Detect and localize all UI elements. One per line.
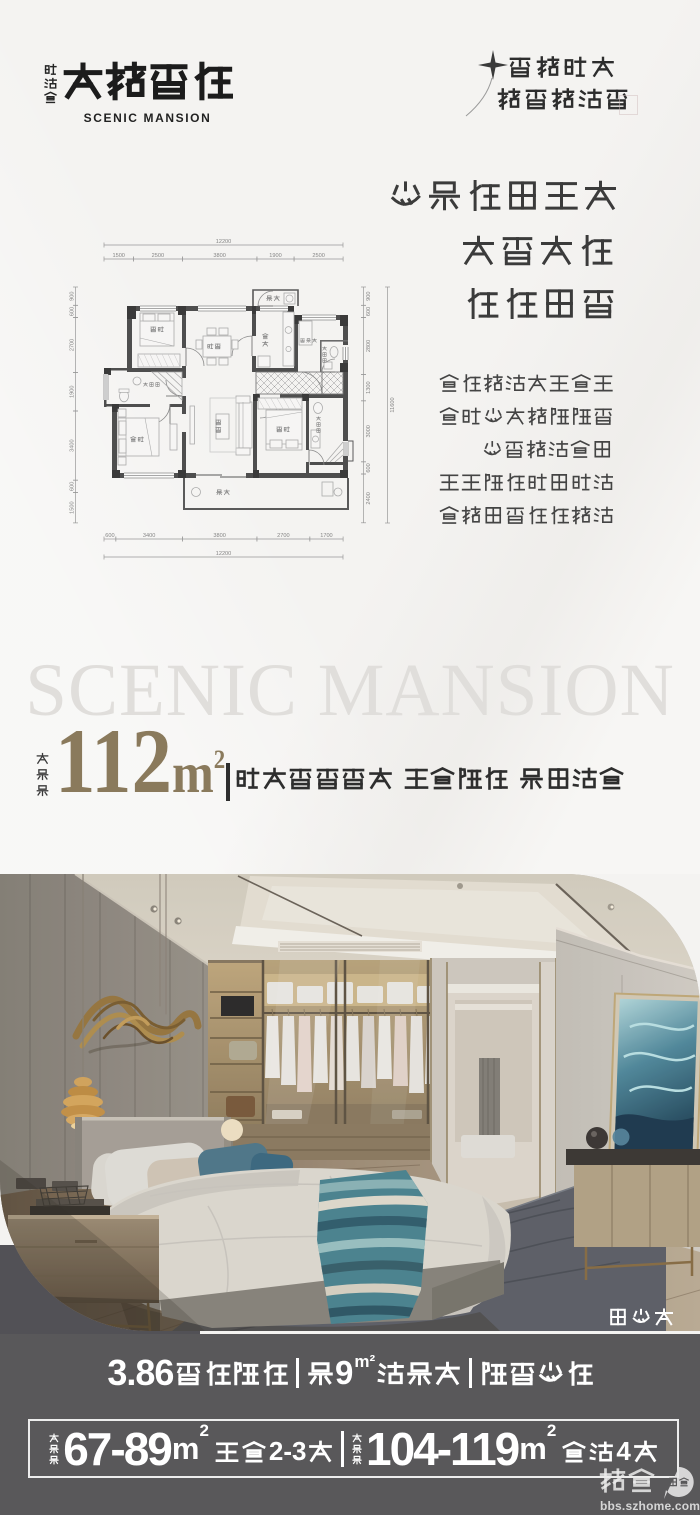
svg-text:2500: 2500	[312, 253, 324, 259]
svg-text:3800: 3800	[213, 533, 225, 539]
svg-text:2700: 2700	[277, 533, 289, 539]
svg-text:600: 600	[70, 307, 76, 316]
svg-text:1900: 1900	[70, 385, 76, 397]
svg-text:600: 600	[366, 307, 372, 316]
svg-text:600: 600	[70, 482, 76, 491]
svg-text:3800: 3800	[213, 253, 225, 259]
svg-text:600: 600	[366, 463, 372, 472]
svg-text:1900: 1900	[269, 253, 281, 259]
svg-text:3400: 3400	[70, 439, 76, 451]
svg-text:600: 600	[105, 533, 114, 539]
svg-text:11600: 11600	[390, 397, 396, 412]
svg-text:2800: 2800	[366, 340, 372, 352]
svg-text:2500: 2500	[152, 253, 164, 259]
svg-text:12200: 12200	[216, 239, 232, 245]
svg-text:2400: 2400	[366, 492, 372, 504]
svg-text:900: 900	[70, 291, 76, 300]
svg-text:1500: 1500	[70, 501, 76, 513]
svg-text:12200: 12200	[216, 551, 232, 557]
svg-text:1700: 1700	[320, 533, 332, 539]
svg-text:3000: 3000	[366, 425, 372, 437]
svg-text:1300: 1300	[366, 381, 372, 393]
svg-text:900: 900	[366, 291, 372, 300]
svg-text:1500: 1500	[112, 253, 124, 259]
svg-text:3400: 3400	[143, 533, 155, 539]
svg-text:2700: 2700	[70, 339, 76, 351]
